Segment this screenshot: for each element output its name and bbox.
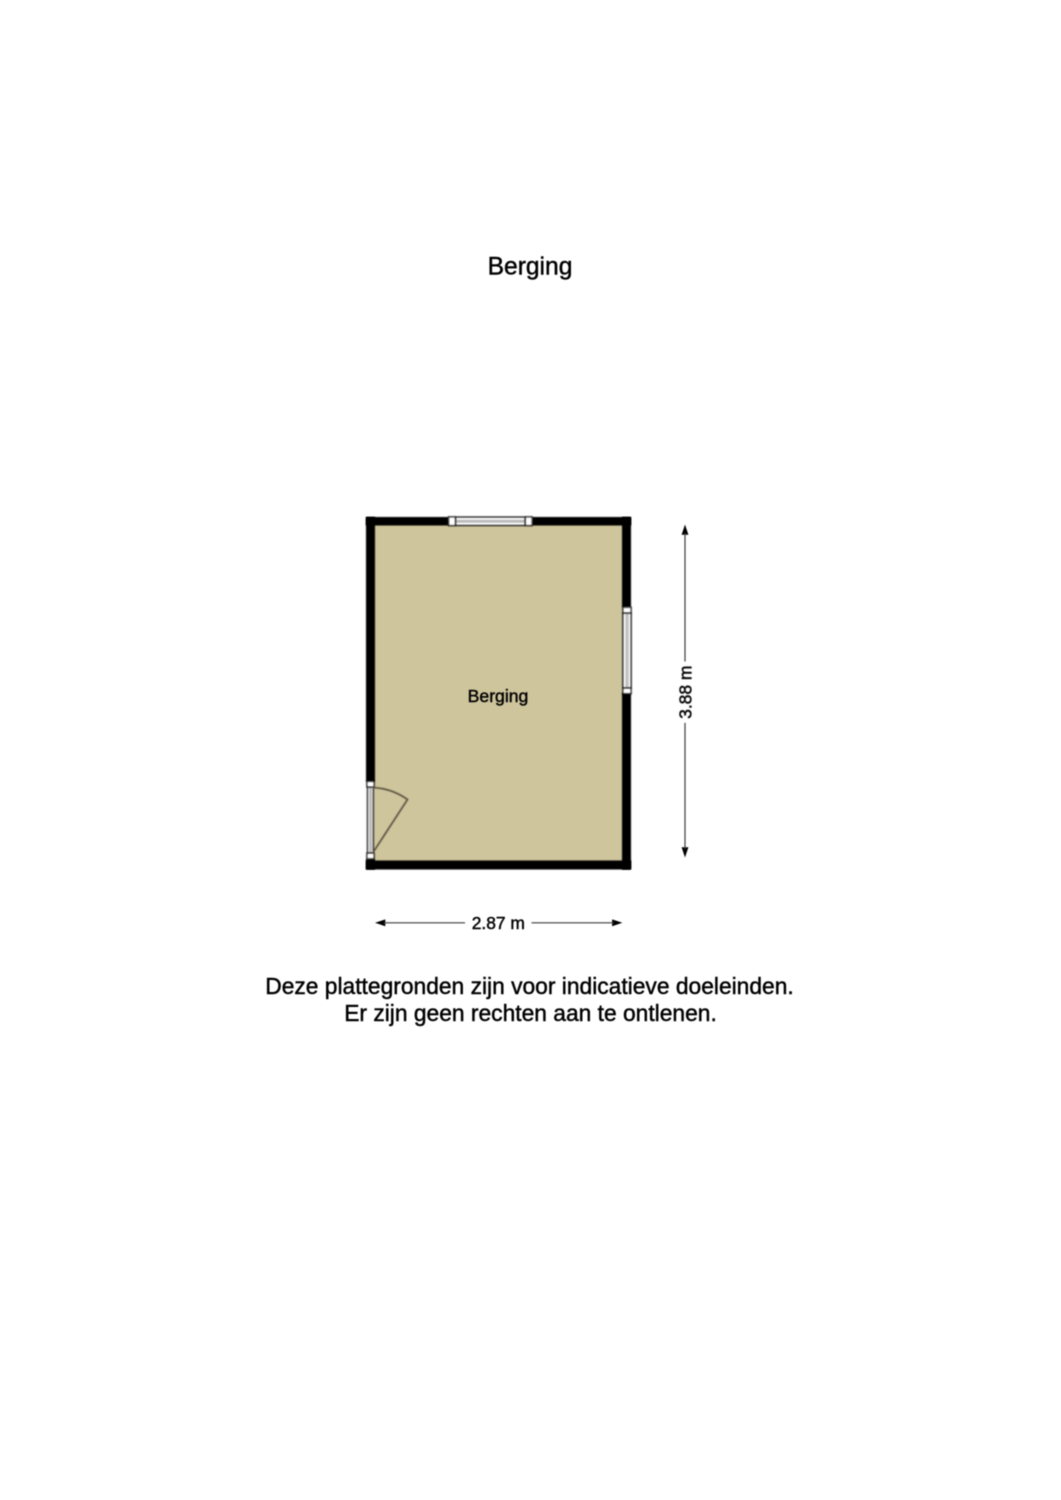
svg-text:2.87 m: 2.87 m (472, 913, 525, 933)
svg-text:Deze plattegronden zijn voor i: Deze plattegronden zijn voor indicatieve… (265, 973, 793, 999)
svg-text:3.88 m: 3.88 m (675, 666, 695, 719)
svg-text:Berging: Berging (468, 686, 529, 706)
svg-text:Er zijn geen rechten aan te on: Er zijn geen rechten aan te ontlenen. (344, 1000, 717, 1026)
svg-text:Berging: Berging (488, 254, 573, 281)
